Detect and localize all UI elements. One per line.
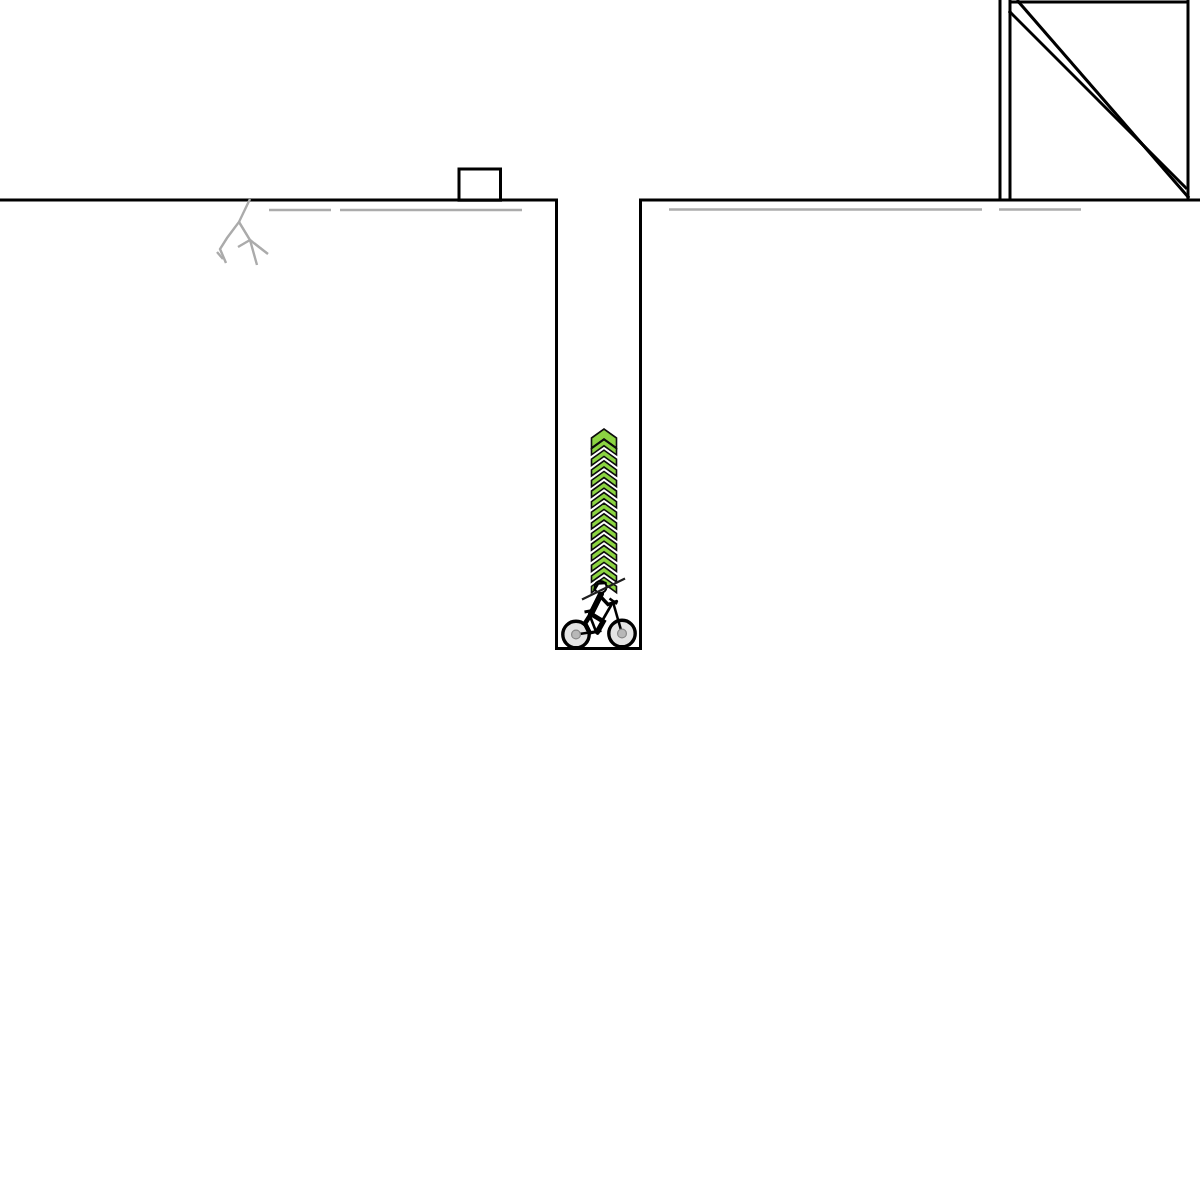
boost-arrows <box>592 429 617 593</box>
game-stage <box>0 0 1200 1200</box>
game-canvas[interactable] <box>0 0 1200 1200</box>
obstacle-box <box>459 169 501 200</box>
ramp-structure-diagonal-inner <box>1009 11 1187 189</box>
bike-rear-hub <box>572 630 581 639</box>
bike-front-hub <box>618 629 627 638</box>
rider-rear-leg <box>585 614 591 633</box>
ramp-structure-diagonal-outer <box>1017 0 1189 198</box>
scenery-crack-branch-left <box>238 240 250 247</box>
